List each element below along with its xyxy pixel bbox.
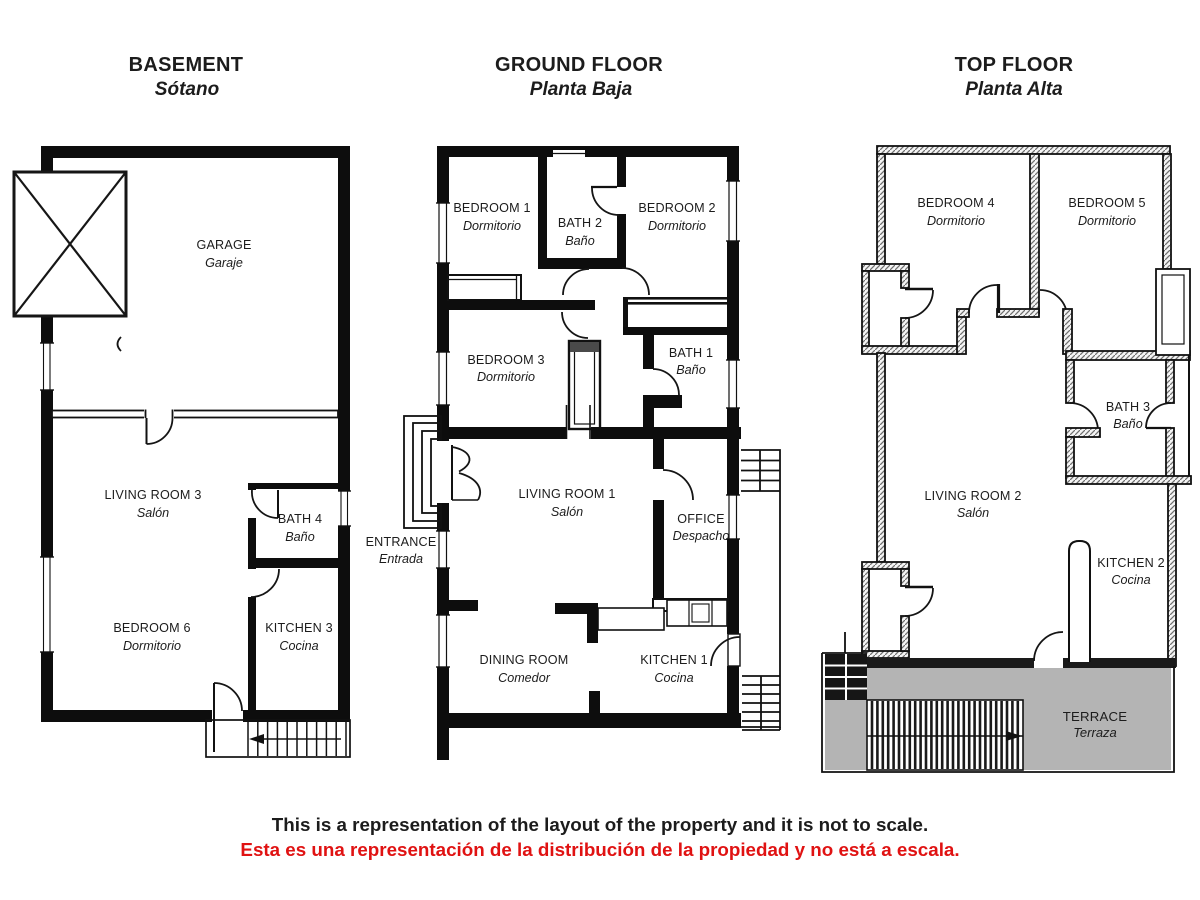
svg-text:Dormitorio: Dormitorio <box>123 639 181 653</box>
svg-text:Terraza: Terraza <box>1073 725 1117 740</box>
svg-text:Baño: Baño <box>285 530 314 544</box>
svg-text:Baño: Baño <box>1113 417 1142 431</box>
svg-text:Dormitorio: Dormitorio <box>477 370 535 384</box>
svg-text:BEDROOM 1: BEDROOM 1 <box>453 201 530 215</box>
svg-text:Comedor: Comedor <box>498 671 551 685</box>
svg-text:Garaje: Garaje <box>205 256 243 270</box>
svg-text:Dormitorio: Dormitorio <box>648 219 706 233</box>
svg-text:LIVING ROOM 2: LIVING ROOM 2 <box>924 489 1021 503</box>
svg-text:Dormitorio: Dormitorio <box>1078 214 1136 228</box>
svg-text:TERRACE: TERRACE <box>1063 709 1127 724</box>
svg-text:Salón: Salón <box>137 506 169 520</box>
svg-text:LIVING ROOM 3: LIVING ROOM 3 <box>104 488 201 502</box>
svg-text:BEDROOM 5: BEDROOM 5 <box>1068 196 1145 210</box>
svg-text:GARAGE: GARAGE <box>196 238 251 252</box>
svg-text:Baño: Baño <box>565 234 594 248</box>
svg-text:Salón: Salón <box>957 506 989 520</box>
svg-text:LIVING ROOM 1: LIVING ROOM 1 <box>518 487 615 501</box>
svg-text:BEDROOM 3: BEDROOM 3 <box>467 353 544 367</box>
svg-text:Cocina: Cocina <box>279 639 318 653</box>
svg-text:OFFICE: OFFICE <box>677 512 724 526</box>
svg-text:KITCHEN 3: KITCHEN 3 <box>265 621 333 635</box>
svg-text:Sótano: Sótano <box>155 79 219 100</box>
svg-text:TOP FLOOR: TOP FLOOR <box>955 54 1074 76</box>
svg-text:BEDROOM 2: BEDROOM 2 <box>638 201 715 215</box>
svg-text:Cocina: Cocina <box>1111 573 1150 587</box>
svg-text:Entrada: Entrada <box>379 552 423 566</box>
svg-text:BATH 2: BATH 2 <box>558 216 602 230</box>
svg-text:KITCHEN 2: KITCHEN 2 <box>1097 556 1165 570</box>
svg-text:GROUND FLOOR: GROUND FLOOR <box>495 54 663 76</box>
svg-text:Dormitorio: Dormitorio <box>463 219 521 233</box>
svg-text:BASEMENT: BASEMENT <box>129 54 244 76</box>
svg-text:Despacho: Despacho <box>673 529 730 543</box>
svg-text:ENTRANCE: ENTRANCE <box>366 535 437 549</box>
svg-text:Esta es una representación de: Esta es una representación de la distrib… <box>240 839 959 860</box>
svg-text:BATH 4: BATH 4 <box>278 512 322 526</box>
svg-text:KITCHEN 1: KITCHEN 1 <box>640 653 708 667</box>
svg-text:This is a representation of th: This is a representation of the layout o… <box>272 814 928 835</box>
svg-text:Salón: Salón <box>551 505 583 519</box>
svg-text:Planta Baja: Planta Baja <box>530 79 633 100</box>
svg-text:BEDROOM 6: BEDROOM 6 <box>113 621 190 635</box>
svg-text:Planta Alta: Planta Alta <box>965 79 1063 100</box>
svg-text:Baño: Baño <box>676 363 705 377</box>
svg-text:Dormitorio: Dormitorio <box>927 214 985 228</box>
svg-text:BATH 3: BATH 3 <box>1106 400 1150 414</box>
svg-text:BEDROOM 4: BEDROOM 4 <box>917 196 994 210</box>
svg-text:Cocina: Cocina <box>654 671 693 685</box>
svg-text:DINING ROOM: DINING ROOM <box>480 653 569 667</box>
svg-text:BATH 1: BATH 1 <box>669 346 713 360</box>
